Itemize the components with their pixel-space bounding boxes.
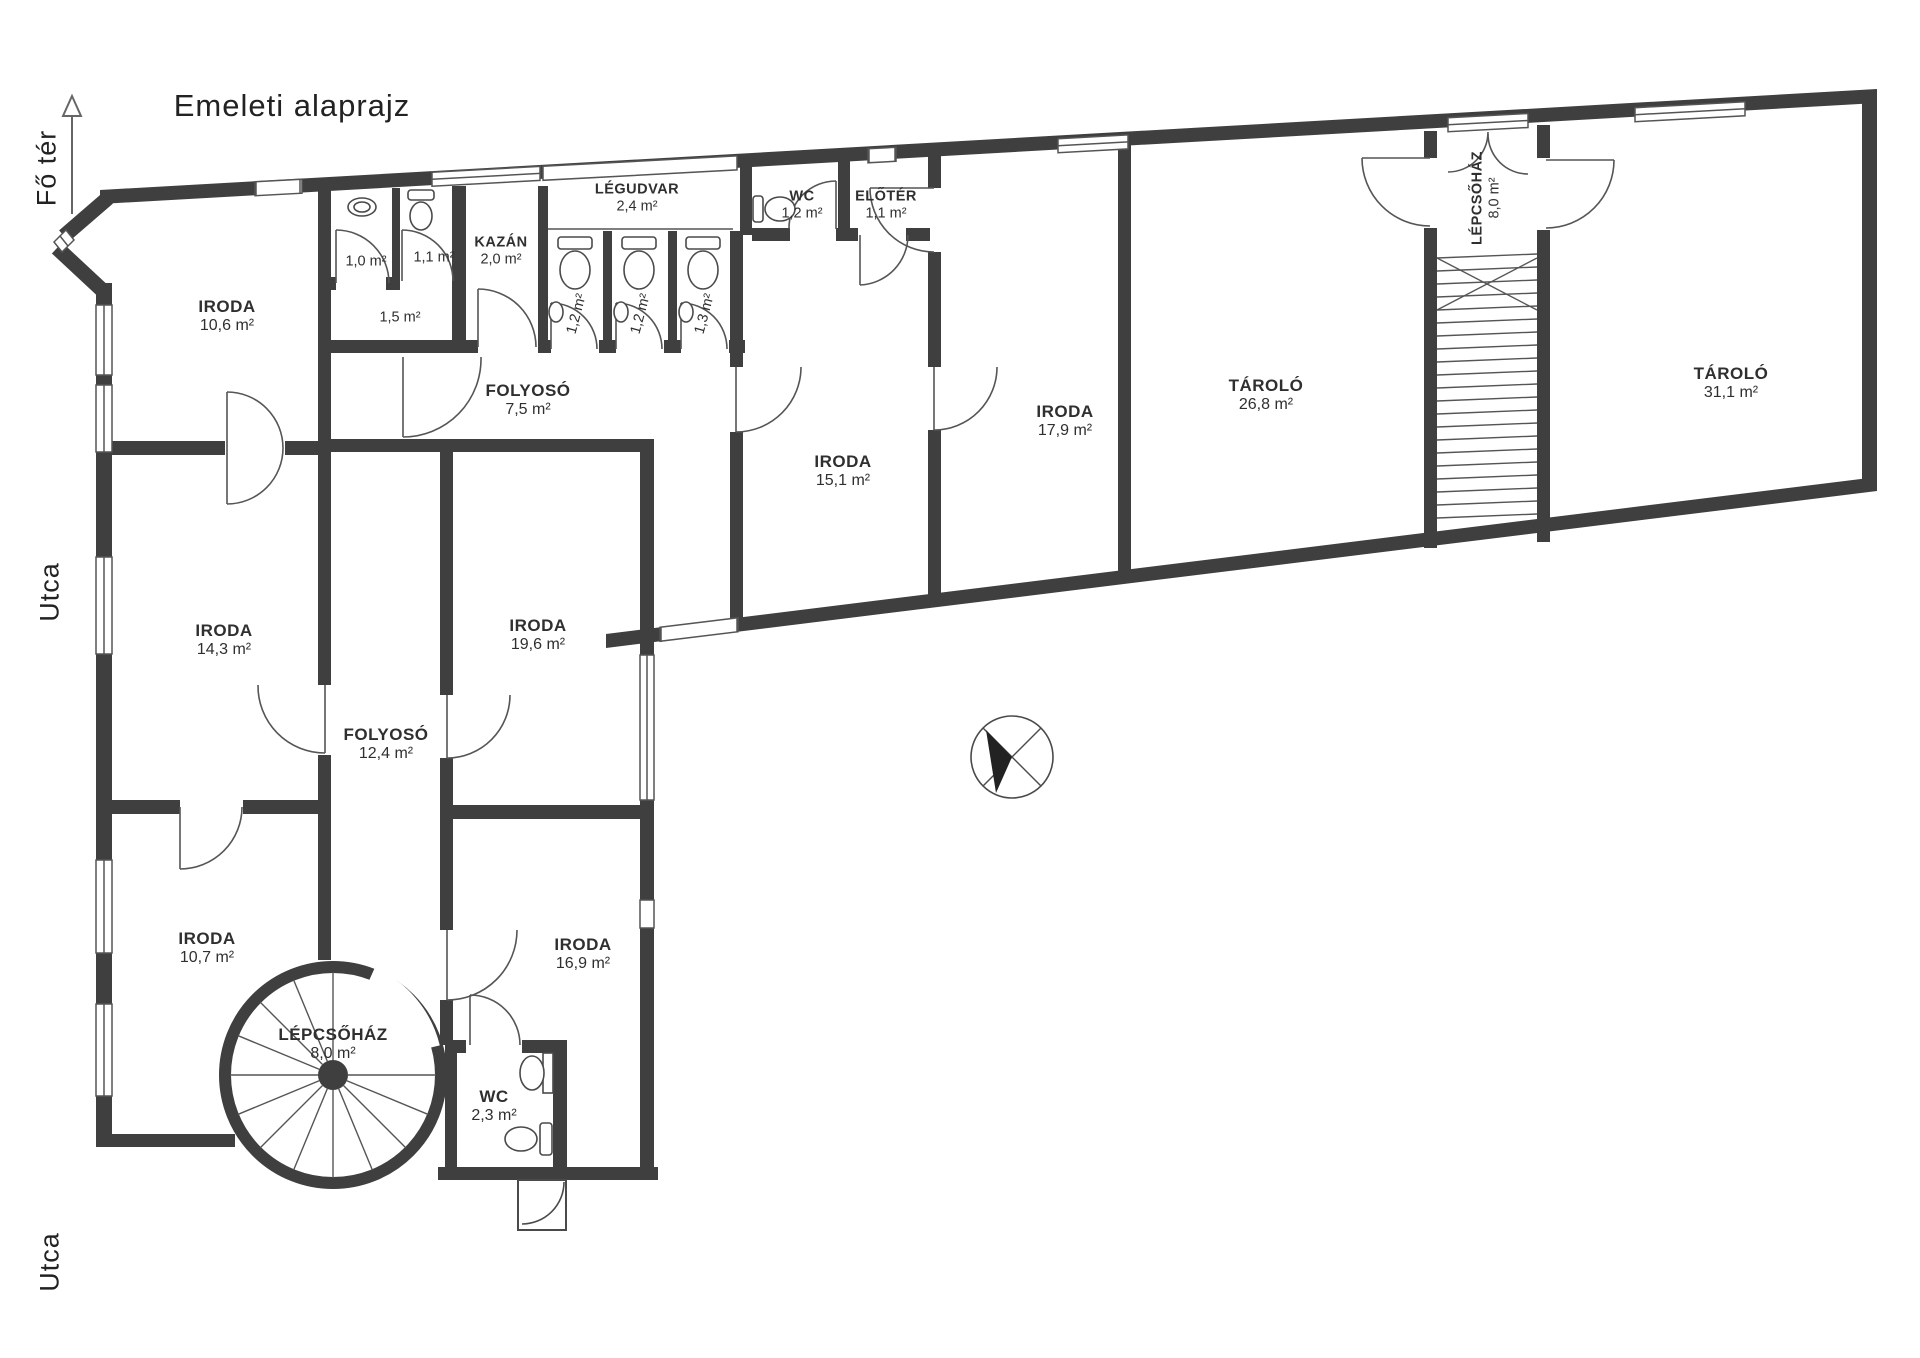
room-label-tároló-14: TÁROLÓ26,8 m² [1229,376,1304,414]
room-name: IRODA [814,452,871,472]
street-label-utca-left: Utca [35,562,66,622]
street-label-utca-bottom: Utca [35,1232,66,1292]
room-name: IRODA [198,297,255,317]
room-label-lépcsőház-15: LÉPCSŐHÁZ8,0 m² [1469,151,1502,245]
room-label-area-1: 1,0 m² [345,254,386,271]
room-name: IRODA [195,621,252,641]
room-label-légudvar-5: LÉGUDVAR2,4 m² [595,181,679,214]
room-area: 17,9 m² [1036,422,1093,440]
room-area: 1,1 m² [855,205,917,222]
room-name: TÁROLÓ [1229,376,1304,396]
room-label-wc-6: WC1,2 m² [781,188,822,221]
interior-walls [96,125,1550,1180]
room-name: LÉGUDVAR [595,181,679,198]
room-name: IRODA [554,935,611,955]
north-compass-icon [971,716,1053,798]
page-title: Emeleti alaprajz [174,88,411,124]
room-area: 10,7 m² [178,949,235,967]
room-area: 16,9 m² [554,955,611,973]
room-area: 19,6 m² [509,636,566,654]
room-area: 7,5 m² [485,401,570,419]
room-name: FOLYOSÓ [343,725,428,745]
room-area: 8,0 m² [278,1045,387,1063]
room-name: WC [781,188,822,205]
direction-arrow-icon [63,96,81,214]
room-label-lépcsőház-22: LÉPCSŐHÁZ8,0 m² [278,1025,387,1063]
room-label-folyosó-18: FOLYOSÓ12,4 m² [343,725,428,763]
room-name: KAZÁN [474,234,527,251]
floor-plan-drawing [0,0,1920,1358]
room-name: IRODA [509,616,566,636]
room-name: LÉPCSŐHÁZ [1469,151,1486,245]
room-name: WC [471,1087,516,1107]
sink-icon [348,198,376,216]
room-label-iroda-21: IRODA16,9 m² [554,935,611,973]
room-name: FOLYOSÓ [485,381,570,401]
room-label-area-3: 1,5 m² [379,310,420,327]
room-area: 2,3 m² [471,1107,516,1125]
room-name: IRODA [1036,402,1093,422]
room-area: 2,4 m² [595,198,679,215]
room-area: 1,2 m² [781,205,822,222]
room-area: 14,3 m² [195,641,252,659]
room-area: 12,4 m² [343,745,428,763]
straight-stair-icon [1437,254,1537,518]
toilet-icon [408,190,434,230]
room-name: IRODA [178,929,235,949]
room-label-előtér-7: ELŐTÉR1,1 m² [855,188,917,221]
street-label-fo-ter: Fő tér [32,130,63,207]
room-name: LÉPCSŐHÁZ [278,1025,387,1045]
toilet-icon [558,237,720,289]
room-area: 31,1 m² [1694,384,1769,402]
room-label-folyosó-11: FOLYOSÓ7,5 m² [485,381,570,419]
room-area: 15,1 m² [814,472,871,490]
toilet-icon [505,1123,552,1155]
room-label-iroda-20: IRODA10,7 m² [178,929,235,967]
room-area: 1,5 m² [379,310,420,327]
sink-icon [520,1053,553,1093]
room-area: 10,6 m² [198,317,255,335]
room-label-iroda-0: IRODA10,6 m² [198,297,255,335]
room-label-wc-23: WC2,3 m² [471,1087,516,1125]
room-name: TÁROLÓ [1694,364,1769,384]
room-area: 2,0 m² [474,251,527,268]
room-label-iroda-19: IRODA19,6 m² [509,616,566,654]
room-label-kazán-4: KAZÁN2,0 m² [474,234,527,267]
room-name: ELŐTÉR [855,188,917,205]
room-area: 8,0 m² [1486,151,1503,245]
room-label-iroda-17: IRODA14,3 m² [195,621,252,659]
room-label-iroda-12: IRODA15,1 m² [814,452,871,490]
spiral-stair-icon [225,967,441,1183]
room-label-iroda-13: IRODA17,9 m² [1036,402,1093,440]
room-area: 26,8 m² [1229,396,1304,414]
floor-plan-page: Emeleti alaprajz Fő tér Utca Utca IRODA1… [0,0,1920,1358]
room-label-area-2: 1,1 m² [413,250,454,267]
room-label-tároló-16: TÁROLÓ31,1 m² [1694,364,1769,402]
room-area: 1,0 m² [345,254,386,271]
room-area: 1,1 m² [413,250,454,267]
